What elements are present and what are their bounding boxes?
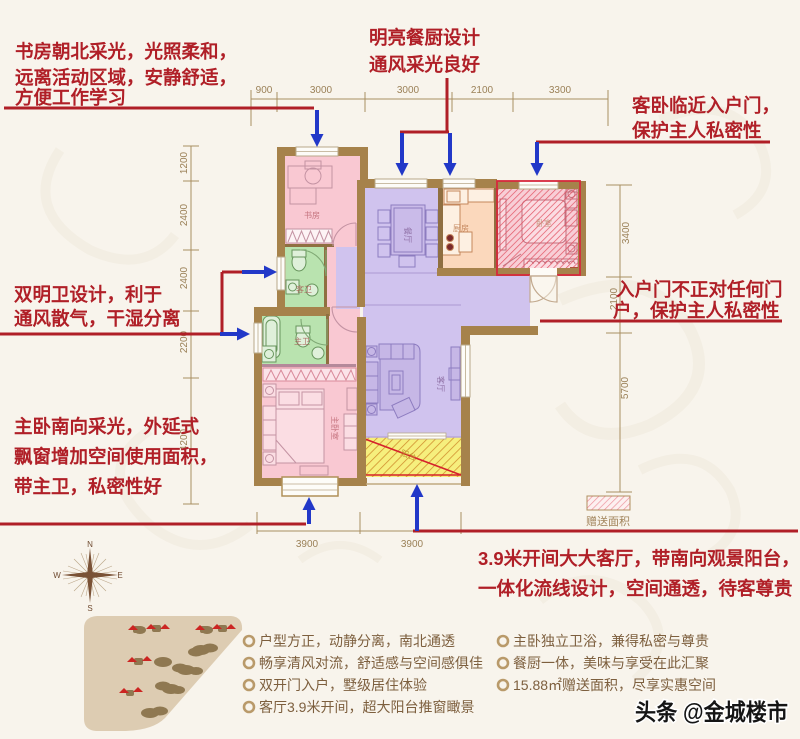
svg-text:通风采光良好: 通风采光良好 (369, 54, 481, 75)
svg-text:3400: 3400 (621, 221, 632, 244)
svg-text:3000: 3000 (397, 85, 420, 96)
svg-text:客厅3.9米开间，超大阳台推窗瞰景: 客厅3.9米开间，超大阳台推窗瞰景 (259, 699, 474, 715)
svg-text:客厅: 客厅 (436, 376, 446, 392)
svg-text:2400: 2400 (179, 266, 190, 289)
svg-text:1200: 1200 (179, 151, 190, 174)
svg-text:主卧室: 主卧室 (330, 416, 340, 440)
svg-text:带主卫，私密性好: 带主卫，私密性好 (14, 476, 163, 497)
svg-text:客卫: 客卫 (296, 284, 312, 294)
svg-text:保护主人私密性: 保护主人私密性 (631, 120, 762, 141)
svg-text:卧室: 卧室 (536, 218, 552, 228)
svg-text:W: W (53, 571, 61, 580)
svg-text:3900: 3900 (401, 539, 424, 550)
svg-text:S: S (87, 604, 92, 613)
svg-text:远离活动区域，安静舒适，: 远离活动区域，安静舒适， (15, 67, 237, 88)
svg-text:N: N (87, 540, 93, 549)
svg-text:赠送面积: 赠送面积 (586, 514, 630, 528)
svg-text:3300: 3300 (549, 85, 572, 96)
svg-text:厨房: 厨房 (453, 223, 469, 233)
svg-text:3900: 3900 (296, 539, 319, 550)
svg-text:主卧独立卫浴，兼得私密与尊贵: 主卧独立卫浴，兼得私密与尊贵 (513, 633, 709, 649)
svg-text:3.9米开间大大客厅，带南向观景阳台，: 3.9米开间大大客厅，带南向观景阳台， (478, 548, 800, 569)
svg-text:飘窗增加空间使用面积，: 飘窗增加空间使用面积， (14, 446, 218, 467)
svg-text:E: E (117, 571, 122, 580)
svg-text:双开门入户，墅级居住体验: 双开门入户，墅级居住体验 (259, 677, 427, 693)
svg-text:主卫: 主卫 (294, 336, 310, 346)
svg-text:3000: 3000 (310, 85, 333, 96)
svg-text:书房朝北采光，光照柔和，: 书房朝北采光，光照柔和， (15, 41, 237, 62)
svg-text:书房: 书房 (304, 210, 320, 220)
svg-text:餐厨一体，美味与享受在此汇聚: 餐厨一体，美味与享受在此汇聚 (513, 655, 709, 671)
svg-text:餐厅: 餐厅 (403, 227, 412, 243)
svg-text:户，保护主人私密性: 户，保护主人私密性 (613, 300, 780, 321)
svg-text:头条 @金城楼市: 头条 @金城楼市 (635, 699, 788, 725)
svg-text:2400: 2400 (179, 203, 190, 226)
svg-text:客卧临近入户门，: 客卧临近入户门， (632, 95, 780, 116)
svg-text:主卧南向采光，外延式: 主卧南向采光，外延式 (14, 416, 200, 437)
svg-text:15.88㎡赠送面积，尽享实惠空间: 15.88㎡赠送面积，尽享实惠空间 (513, 677, 716, 693)
svg-text:明亮餐厨设计: 明亮餐厨设计 (369, 27, 481, 48)
svg-text:入户门不正对任何门: 入户门不正对任何门 (616, 279, 783, 300)
svg-text:畅享清风对流，舒适感与空间感俱佳: 畅享清风对流，舒适感与空间感俱佳 (259, 655, 483, 671)
svg-text:通风散气，干湿分离: 通风散气，干湿分离 (14, 308, 181, 329)
svg-text:双明卫设计，利于: 双明卫设计，利于 (14, 284, 162, 305)
svg-text:5700: 5700 (620, 376, 631, 399)
svg-text:900: 900 (256, 85, 273, 96)
svg-text:2100: 2100 (471, 85, 494, 96)
svg-text:户型方正，动静分离，南北通透: 户型方正，动静分离，南北通透 (259, 633, 455, 649)
svg-text:方便工作学习: 方便工作学习 (15, 87, 126, 108)
svg-text:一体化流线设计，空间通透，待客尊贵: 一体化流线设计，空间通透，待客尊贵 (478, 578, 793, 599)
